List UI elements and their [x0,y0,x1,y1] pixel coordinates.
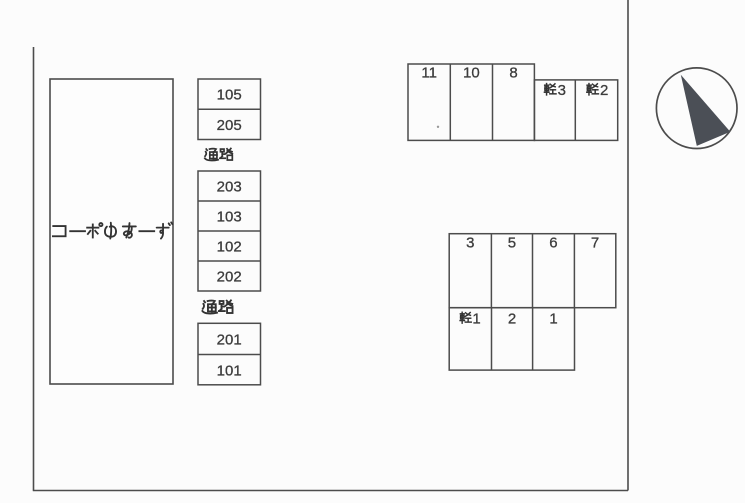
svg-text:10: 10 [463,64,480,81]
svg-text:7: 7 [591,234,599,251]
svg-text:1: 1 [472,311,480,328]
svg-text:3: 3 [466,234,474,251]
svg-text:11: 11 [421,64,437,81]
svg-text:1: 1 [549,311,557,328]
svg-text:2: 2 [600,82,608,99]
svg-text:103: 103 [217,208,242,225]
svg-text:101: 101 [217,362,242,379]
svg-text:102: 102 [217,238,242,255]
svg-text:6: 6 [549,234,557,251]
svg-text:205: 205 [217,117,242,134]
svg-text:202: 202 [217,268,242,285]
svg-text:201: 201 [217,331,242,348]
svg-text:2: 2 [508,311,516,328]
svg-text:8: 8 [509,64,517,81]
svg-text:3: 3 [558,82,566,99]
svg-text:5: 5 [508,234,516,251]
svg-text:203: 203 [217,178,242,195]
svg-text:105: 105 [217,87,242,104]
